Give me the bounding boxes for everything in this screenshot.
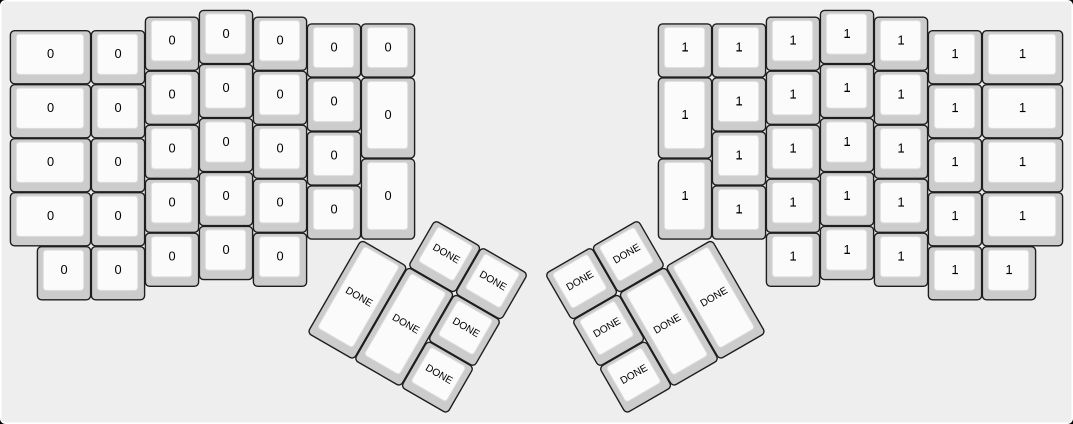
svg-text:1: 1 xyxy=(789,87,796,102)
svg-text:0: 0 xyxy=(276,87,283,102)
svg-text:1: 1 xyxy=(681,39,688,54)
svg-text:0: 0 xyxy=(276,249,283,264)
svg-text:1: 1 xyxy=(789,33,796,48)
svg-text:0: 0 xyxy=(47,100,54,115)
svg-text:1: 1 xyxy=(843,80,850,95)
svg-text:0: 0 xyxy=(330,93,337,108)
svg-text:0: 0 xyxy=(222,26,229,41)
svg-text:0: 0 xyxy=(114,208,121,223)
svg-text:0: 0 xyxy=(114,100,121,115)
svg-text:1: 1 xyxy=(897,33,904,48)
svg-text:1: 1 xyxy=(789,141,796,156)
svg-text:1: 1 xyxy=(1005,262,1012,277)
svg-text:0: 0 xyxy=(114,262,121,277)
svg-text:1: 1 xyxy=(897,195,904,210)
svg-text:0: 0 xyxy=(330,147,337,162)
svg-text:1: 1 xyxy=(735,93,742,108)
svg-text:0: 0 xyxy=(276,141,283,156)
svg-text:0: 0 xyxy=(47,154,54,169)
svg-text:1: 1 xyxy=(681,188,688,203)
svg-text:0: 0 xyxy=(330,39,337,54)
svg-text:0: 0 xyxy=(330,201,337,216)
svg-text:1: 1 xyxy=(897,87,904,102)
svg-text:0: 0 xyxy=(168,87,175,102)
svg-text:1: 1 xyxy=(1019,100,1026,115)
svg-text:0: 0 xyxy=(114,46,121,61)
svg-text:0: 0 xyxy=(384,188,391,203)
svg-text:1: 1 xyxy=(897,249,904,264)
svg-text:0: 0 xyxy=(168,33,175,48)
svg-text:1: 1 xyxy=(843,26,850,41)
svg-text:1: 1 xyxy=(843,188,850,203)
svg-text:0: 0 xyxy=(168,195,175,210)
svg-text:0: 0 xyxy=(222,134,229,149)
svg-text:1: 1 xyxy=(735,39,742,54)
svg-text:1: 1 xyxy=(735,201,742,216)
svg-text:1: 1 xyxy=(1019,208,1026,223)
svg-text:0: 0 xyxy=(222,80,229,95)
svg-text:1: 1 xyxy=(951,46,958,61)
svg-text:1: 1 xyxy=(1019,46,1026,61)
svg-text:1: 1 xyxy=(735,147,742,162)
svg-text:0: 0 xyxy=(222,188,229,203)
svg-text:1: 1 xyxy=(1019,154,1026,169)
svg-text:0: 0 xyxy=(276,33,283,48)
svg-text:0: 0 xyxy=(114,154,121,169)
svg-text:0: 0 xyxy=(47,208,54,223)
svg-text:0: 0 xyxy=(276,195,283,210)
svg-text:0: 0 xyxy=(384,107,391,122)
svg-text:0: 0 xyxy=(168,249,175,264)
svg-text:1: 1 xyxy=(951,208,958,223)
svg-text:1: 1 xyxy=(843,242,850,257)
svg-text:0: 0 xyxy=(60,262,67,277)
svg-text:1: 1 xyxy=(681,107,688,122)
svg-text:0: 0 xyxy=(384,39,391,54)
svg-text:1: 1 xyxy=(951,262,958,277)
svg-text:0: 0 xyxy=(47,46,54,61)
svg-text:1: 1 xyxy=(951,154,958,169)
svg-text:1: 1 xyxy=(843,134,850,149)
svg-text:1: 1 xyxy=(789,195,796,210)
svg-text:0: 0 xyxy=(222,242,229,257)
svg-text:1: 1 xyxy=(897,141,904,156)
svg-text:1: 1 xyxy=(789,249,796,264)
svg-text:1: 1 xyxy=(951,100,958,115)
svg-text:0: 0 xyxy=(168,141,175,156)
